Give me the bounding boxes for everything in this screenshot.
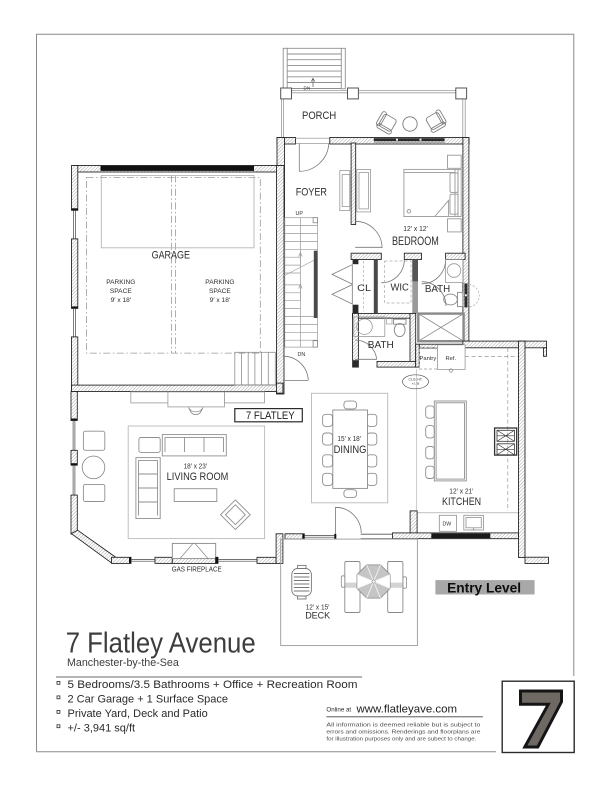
svg-text:Online at: Online at <box>326 707 351 714</box>
svg-text:DINING: DINING <box>334 444 367 456</box>
svg-text:PORCH: PORCH <box>302 110 336 122</box>
svg-text:SPACE: SPACE <box>110 288 132 295</box>
svg-text:DN: DN <box>298 352 306 358</box>
svg-text:Entry Level: Entry Level <box>447 579 521 595</box>
svg-text:12′ x 21′: 12′ x 21′ <box>449 486 474 495</box>
svg-text:CLG. HT.: CLG. HT. <box>409 378 423 382</box>
svg-text:7 FLATLEY: 7 FLATLEY <box>246 410 295 422</box>
svg-text:PARKING: PARKING <box>205 279 234 286</box>
svg-text:15′ x 18′: 15′ x 18′ <box>337 434 361 443</box>
svg-text:BATH: BATH <box>425 284 450 295</box>
svg-text:CL: CL <box>357 283 371 293</box>
svg-text:SPACE: SPACE <box>209 288 231 295</box>
svg-text:BATH: BATH <box>368 340 394 351</box>
svg-text:Manchester-by-the-Sea: Manchester-by-the-Sea <box>67 657 180 669</box>
svg-text:UP: UP <box>296 211 304 217</box>
svg-text:for illustration purposes only: for illustration purposes only and are s… <box>326 736 476 742</box>
svg-text:9′ x 18′: 9′ x 18′ <box>111 297 132 304</box>
svg-text:errors and omissions. Renderi: errors and omissions. Renderings and flo… <box>326 729 481 735</box>
svg-text:12′ x 12′: 12′ x 12′ <box>403 224 428 233</box>
svg-text:DN: DN <box>304 85 311 90</box>
svg-text:DECK: DECK <box>305 610 331 620</box>
svg-text:KITCHEN: KITCHEN <box>442 496 481 508</box>
svg-text:2 Car Garage + 1 Surface Space: 2 Car Garage + 1 Surface Space <box>68 694 229 706</box>
svg-text:+/- 9′: +/- 9′ <box>412 382 420 386</box>
svg-text:All information is deemed reli: All information is deemed reliable but i… <box>326 722 481 728</box>
svg-text:7 Flatley Avenue: 7 Flatley Avenue <box>66 628 256 660</box>
svg-text:5 Bedrooms/3.5 Bathrooms + Off: 5 Bedrooms/3.5 Bathrooms + Office + Recr… <box>68 679 358 691</box>
svg-text:WIC: WIC <box>391 282 409 293</box>
svg-text:PARKING: PARKING <box>106 279 135 286</box>
svg-text:www.flatleyave.com: www.flatleyave.com <box>355 704 457 716</box>
svg-text:18′ x 23′: 18′ x 23′ <box>184 461 208 470</box>
svg-text:Private Yard, Deck and Patio: Private Yard, Deck and Patio <box>68 708 208 720</box>
svg-text:GAS FIREPLACE: GAS FIREPLACE <box>172 566 222 573</box>
svg-text:+/- 3,941 sq/ft: +/- 3,941 sq/ft <box>68 722 136 734</box>
svg-text:LIVING ROOM: LIVING ROOM <box>167 471 229 483</box>
svg-text:FOYER: FOYER <box>296 186 327 198</box>
svg-text:BEDROOM: BEDROOM <box>392 234 439 248</box>
svg-text:Pantry: Pantry <box>420 356 437 362</box>
svg-text:GARAGE: GARAGE <box>152 249 190 261</box>
svg-text:Ref.: Ref. <box>446 356 457 362</box>
svg-text:DW: DW <box>443 522 452 528</box>
svg-text:9′ x 18′: 9′ x 18′ <box>210 297 231 304</box>
